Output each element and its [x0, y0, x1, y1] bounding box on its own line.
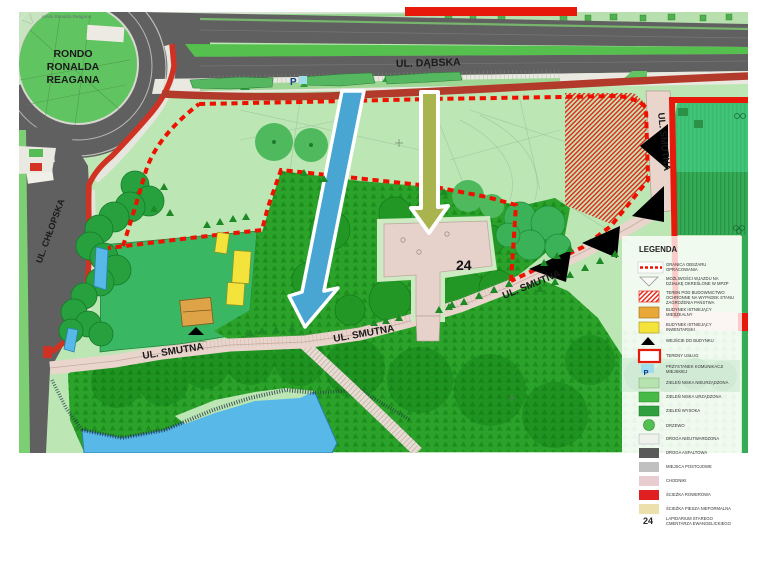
- svg-text:TERENY USŁUG: TERENY USŁUG: [666, 353, 699, 358]
- svg-text:INWENTARSKI: INWENTARSKI: [666, 327, 695, 332]
- svg-text:LEGENDA: LEGENDA: [639, 245, 677, 254]
- svg-text:MIESZKALNY: MIESZKALNY: [666, 312, 693, 317]
- svg-text:ŚCIEŻKA PIESZA NIEFORMALNA: ŚCIEŻKA PIESZA NIEFORMALNA: [666, 506, 731, 511]
- svg-text:24: 24: [643, 516, 653, 526]
- svg-text:DZIAŁKĘ OKREŚLONE W MPZP: DZIAŁKĘ OKREŚLONE W MPZP: [666, 281, 729, 286]
- svg-text:CMENTARZA EWANGELICKIEGO: CMENTARZA EWANGELICKIEGO: [666, 521, 732, 526]
- svg-text:MIEJSCA POSTOJOWE: MIEJSCA POSTOJOWE: [666, 464, 712, 469]
- svg-text:OPRACOWANIA: OPRACOWANIA: [666, 267, 698, 272]
- svg-text:CHODNIKI: CHODNIKI: [666, 478, 686, 483]
- svg-text:ŚCIEŻKA ROWEROWA: ŚCIEŻKA ROWEROWA: [666, 492, 711, 497]
- svg-text:DROGA ASFALTOWA: DROGA ASFALTOWA: [666, 450, 707, 455]
- svg-text:ZIELEŃ WYSOKA: ZIELEŃ WYSOKA: [666, 408, 700, 413]
- svg-text:UL. DĄBSKA: UL. DĄBSKA: [396, 56, 461, 70]
- svg-text:ZAGROŻENIA PAŃSTWA: ZAGROŻENIA PAŃSTWA: [666, 300, 715, 305]
- svg-text:ZIELEŃ NISKA NIEURZĄDZONA: ZIELEŃ NISKA NIEURZĄDZONA: [666, 380, 729, 385]
- svg-text:RONALDA: RONALDA: [47, 61, 100, 73]
- svg-text:REAGANA: REAGANA: [46, 74, 100, 86]
- svg-text:ZIELEŃ NISKA URZĄDZONA: ZIELEŃ NISKA URZĄDZONA: [666, 394, 722, 399]
- svg-text:rondo Ronalda Reagana: rondo Ronalda Reagana: [42, 14, 92, 19]
- svg-text:MIEJSKIEJ: MIEJSKIEJ: [666, 369, 687, 374]
- svg-text:DRZEWO: DRZEWO: [666, 423, 685, 428]
- svg-text:DROGA NIEUTWARDZONA: DROGA NIEUTWARDZONA: [666, 436, 719, 441]
- svg-text:WEJŚCIE DO BUDYNKU: WEJŚCIE DO BUDYNKU: [666, 338, 714, 343]
- svg-text:P: P: [290, 77, 297, 88]
- svg-text:RONDO: RONDO: [53, 48, 92, 60]
- svg-text:P: P: [644, 368, 649, 377]
- svg-text:24: 24: [456, 257, 472, 273]
